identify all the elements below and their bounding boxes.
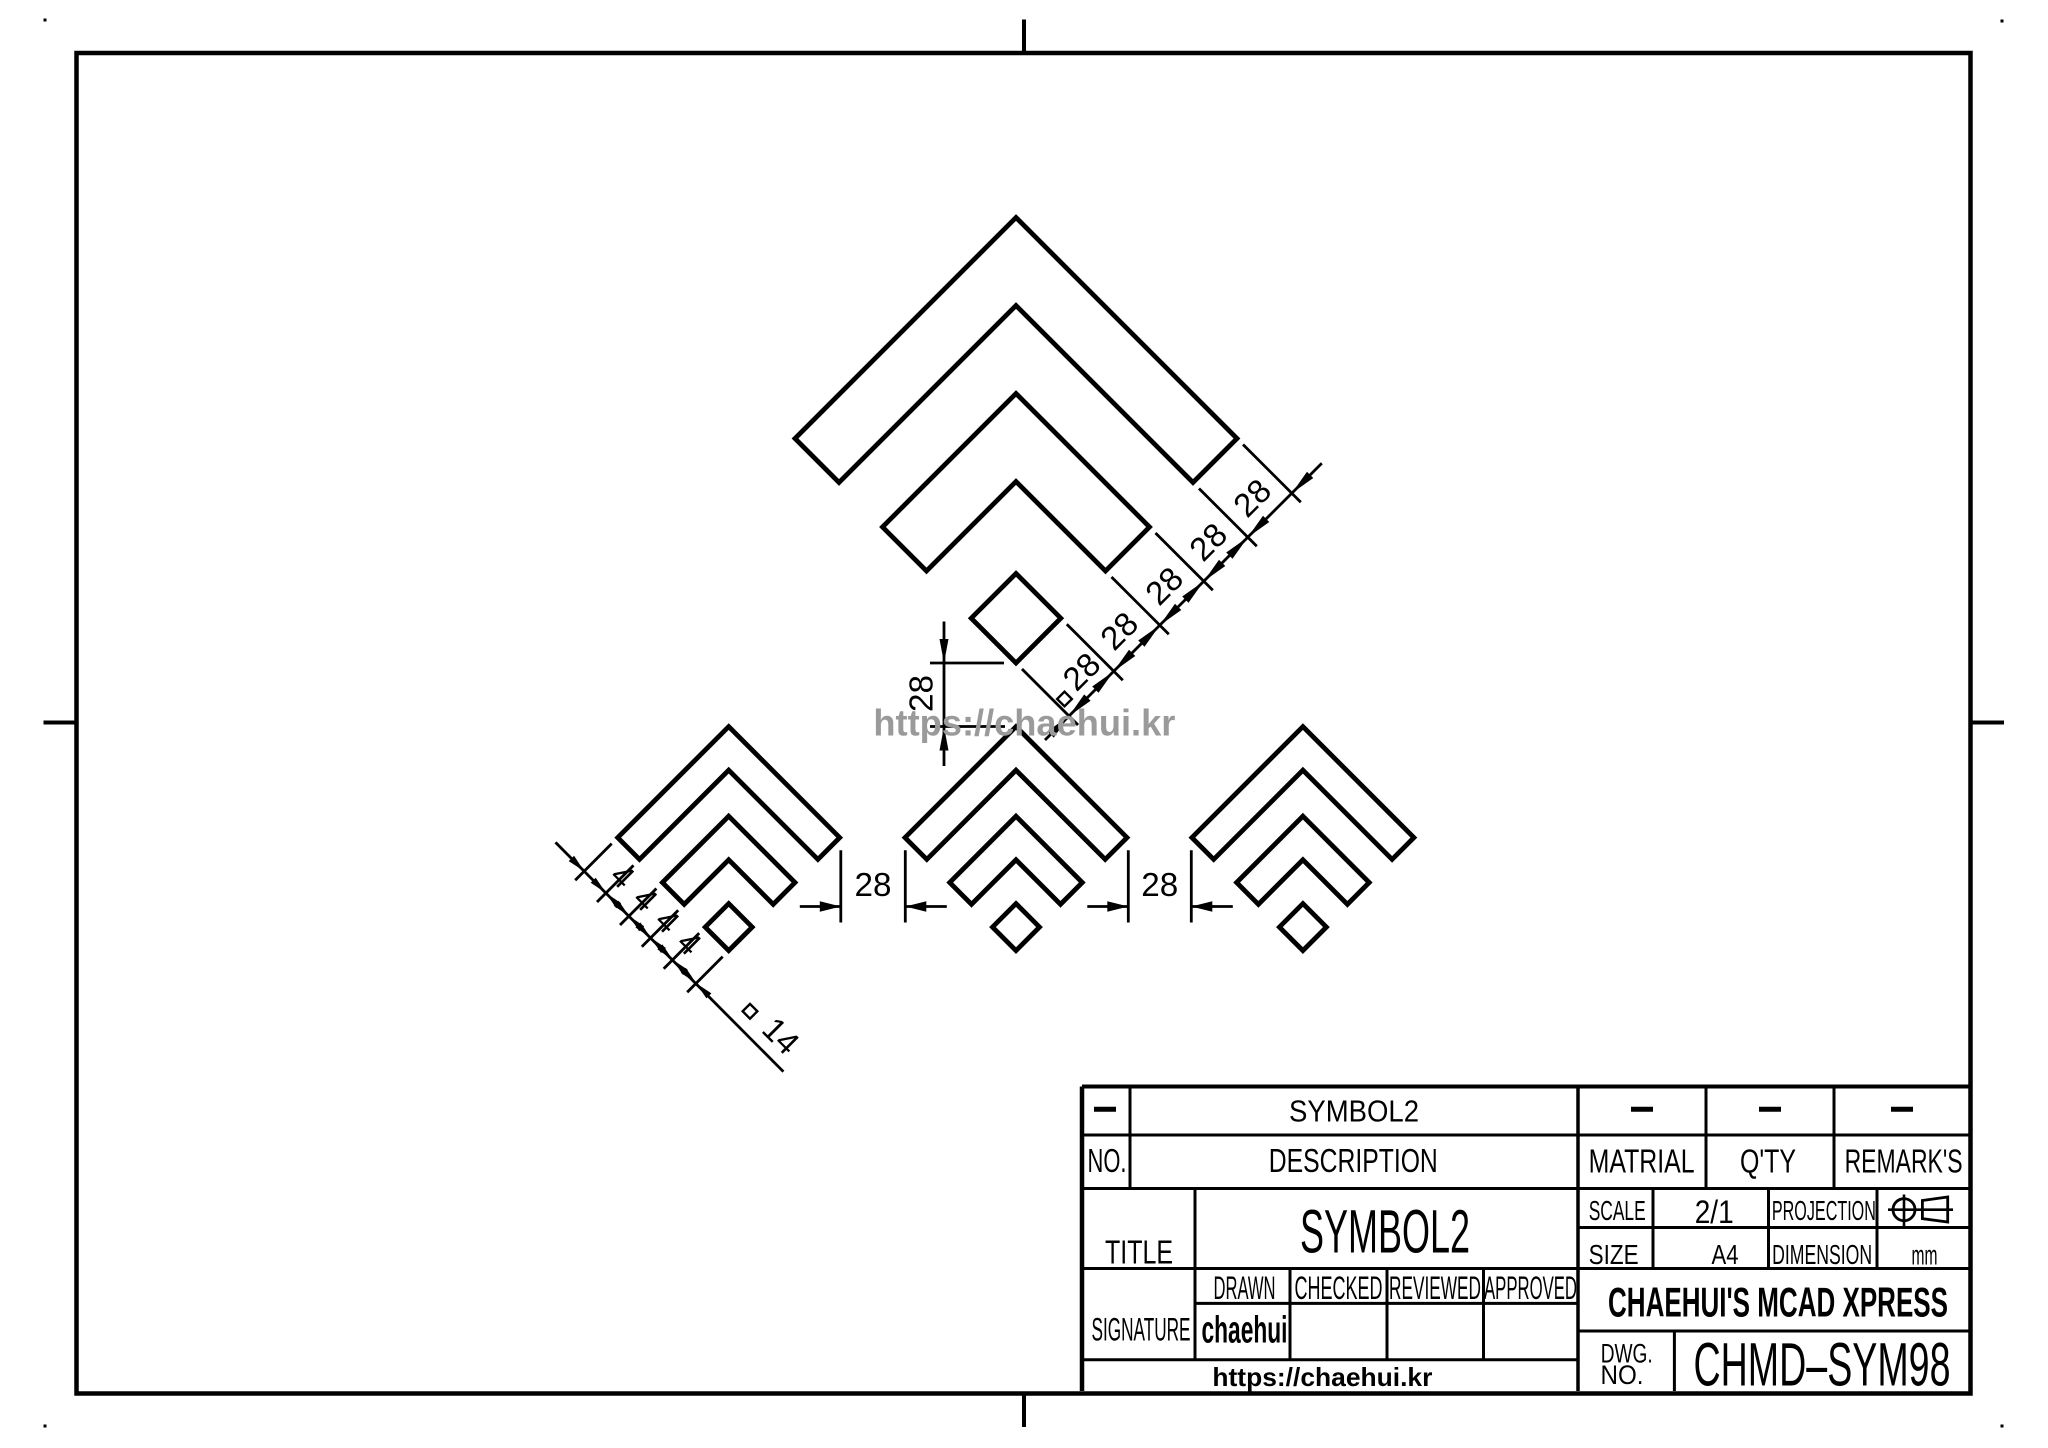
svg-text:DESCRIPTION: DESCRIPTION	[1269, 1142, 1438, 1179]
svg-text:https://chaehui.kr: https://chaehui.kr	[873, 703, 1175, 744]
svg-text:SYMBOL2: SYMBOL2	[1289, 1094, 1419, 1129]
svg-text:SIZE: SIZE	[1589, 1239, 1639, 1270]
svg-text:DIMENSION: DIMENSION	[1772, 1239, 1872, 1270]
svg-text:chaehui: chaehui	[1202, 1310, 1288, 1352]
svg-text:CHAEHUI'S MCAD XPRESS: CHAEHUI'S MCAD XPRESS	[1608, 1278, 1948, 1325]
svg-text:A4: A4	[1712, 1239, 1739, 1270]
svg-text:MATRIAL: MATRIAL	[1589, 1142, 1695, 1179]
svg-text:2/1: 2/1	[1695, 1194, 1734, 1230]
svg-text:NO.: NO.	[1601, 1360, 1644, 1390]
svg-text:NO.: NO.	[1088, 1142, 1127, 1179]
svg-text:mm: mm	[1912, 1240, 1938, 1271]
svg-text:PROJECTION: PROJECTION	[1772, 1195, 1876, 1226]
svg-text:REMARK'S: REMARK'S	[1845, 1142, 1963, 1179]
svg-text:REVIEWED: REVIEWED	[1389, 1270, 1481, 1306]
svg-text:28: 28	[1141, 866, 1178, 903]
svg-text:Q'TY: Q'TY	[1740, 1142, 1796, 1179]
svg-text:https://chaehui.kr: https://chaehui.kr	[1212, 1362, 1432, 1392]
svg-text:APPROVED: APPROVED	[1484, 1270, 1577, 1306]
svg-text:SCALE: SCALE	[1589, 1195, 1646, 1226]
svg-text:SIGNATURE: SIGNATURE	[1092, 1312, 1191, 1348]
svg-text:SYMBOL2: SYMBOL2	[1300, 1198, 1470, 1266]
svg-text:DRAWN: DRAWN	[1214, 1270, 1276, 1306]
svg-text:CHECKED: CHECKED	[1295, 1270, 1383, 1306]
svg-text:TITLE: TITLE	[1105, 1233, 1173, 1270]
svg-text:28: 28	[855, 866, 892, 903]
svg-text:CHMD–SYM98: CHMD–SYM98	[1694, 1331, 1951, 1399]
